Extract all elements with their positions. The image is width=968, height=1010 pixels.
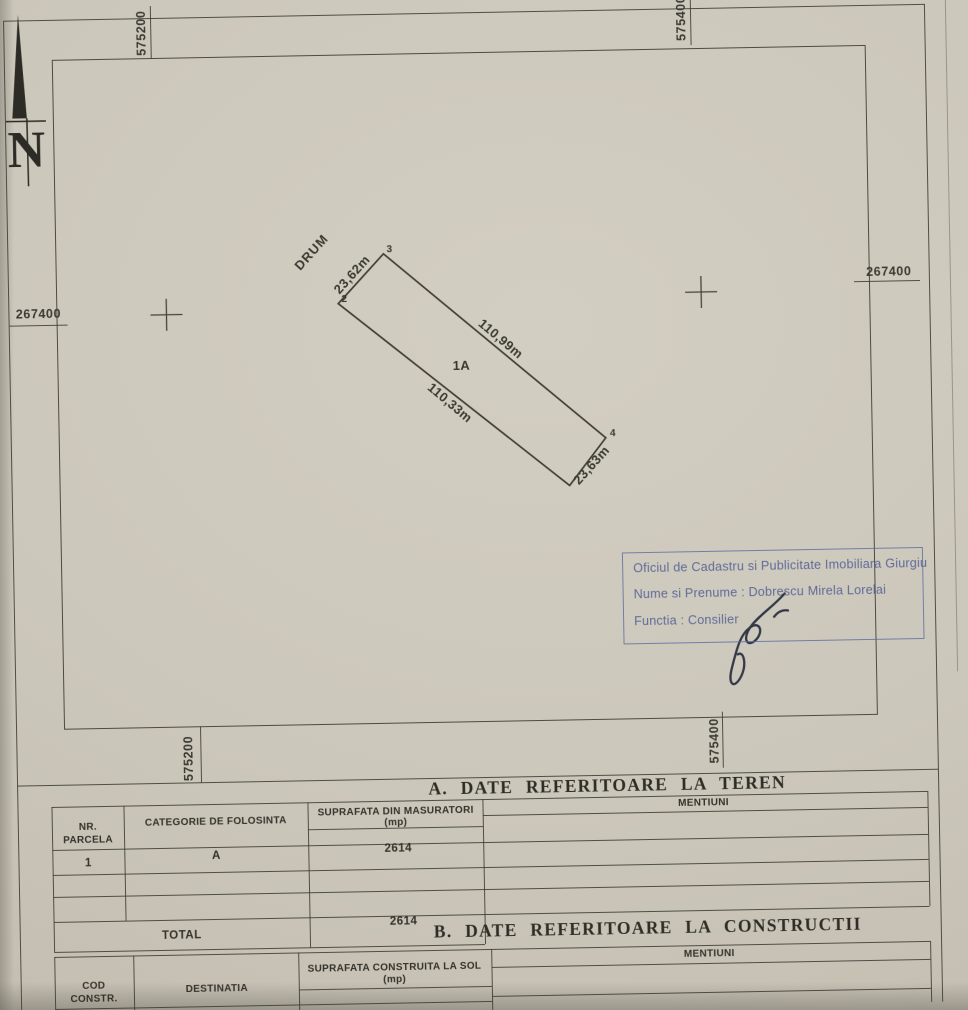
stamp-box: Oficiul de Cadastru si Publicitate Imobi… xyxy=(622,547,925,645)
cell-parcel-suprafata: 2614 xyxy=(384,842,412,855)
col-header-nr2: PARCELA xyxy=(63,834,113,846)
stamp-name-line: Nume si Prenume : Dobrescu Mirela Lorela… xyxy=(634,582,917,601)
parcel-outline xyxy=(337,250,606,490)
corner-number: 3 xyxy=(386,244,392,255)
cell-parcel-categorie: A xyxy=(212,850,221,862)
parcel-id-label: 1A xyxy=(453,358,471,373)
total-value: 2614 xyxy=(390,915,418,928)
north-label: N xyxy=(7,120,46,180)
col-header-mentiuni-b: MENTIUNI xyxy=(684,948,735,960)
stamp-office-line: Oficiul de Cadastru si Publicitate Imobi… xyxy=(633,556,916,575)
col-header-cod: COD xyxy=(82,981,105,992)
total-label: TOTAL xyxy=(162,929,202,942)
col-header-destinatia: DESTINATIA xyxy=(186,983,248,995)
corner-number: 4 xyxy=(610,428,616,439)
col-header-mentiuni: MENTIUNI xyxy=(678,797,729,809)
cell-parcel-nr: 1 xyxy=(85,857,92,869)
scanned-cadastral-plan: 575200 575400 267400 267400 575200 57540… xyxy=(0,0,968,1010)
grid-cross-left xyxy=(150,298,183,331)
grid-cross-right xyxy=(685,276,718,309)
col-header-nr: NR. xyxy=(79,822,97,833)
paper-content: 575200 575400 267400 267400 575200 57540… xyxy=(0,0,968,1010)
col-header-cod2: CONSTR. xyxy=(70,993,117,1005)
col-header-suprafata-b-unit: (mp) xyxy=(383,974,406,985)
corner-number: 2 xyxy=(341,294,347,305)
stamp-function-line: Functia : Consilier xyxy=(634,609,917,628)
col-header-suprafata-unit: (mp) xyxy=(384,817,407,828)
